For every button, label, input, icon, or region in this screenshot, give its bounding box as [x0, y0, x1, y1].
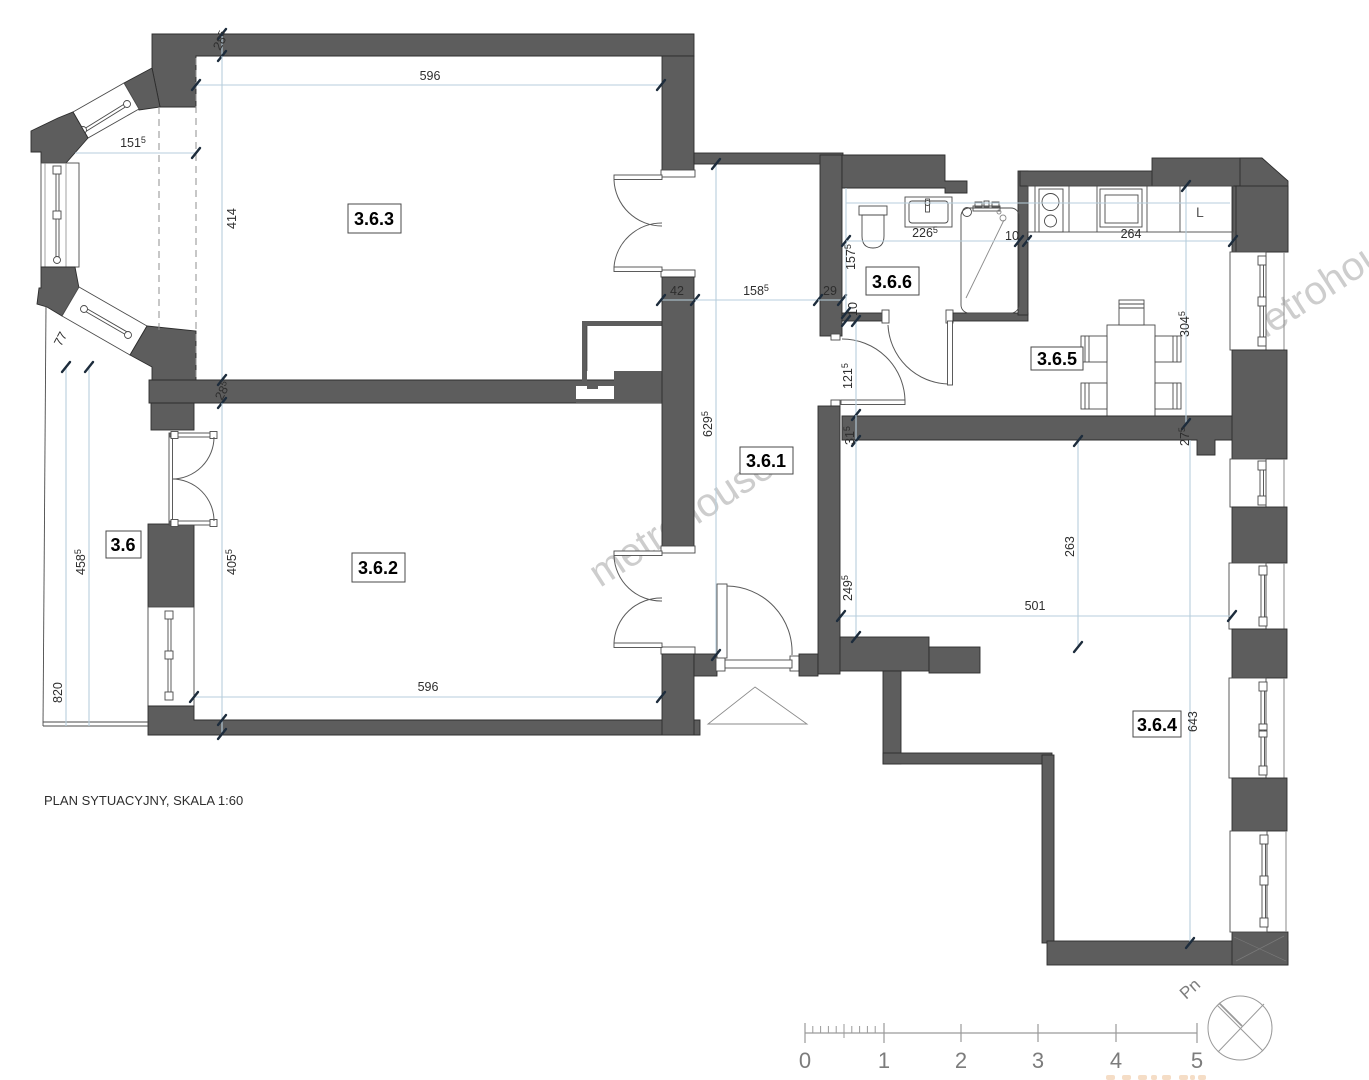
svg-text:10: 10: [1005, 229, 1019, 243]
svg-text:3.6.1: 3.6.1: [746, 451, 786, 471]
svg-text:1: 1: [878, 1048, 890, 1073]
svg-text:29: 29: [823, 284, 837, 298]
svg-text:596: 596: [418, 680, 439, 694]
svg-text:3.6.2: 3.6.2: [358, 558, 398, 578]
svg-text:4: 4: [1110, 1048, 1122, 1073]
svg-text:820: 820: [51, 682, 65, 703]
svg-text:3.6.6: 3.6.6: [872, 272, 912, 292]
svg-text:3: 3: [1032, 1048, 1044, 1073]
svg-text:5: 5: [1191, 1048, 1203, 1073]
svg-text:PLAN SYTUACYJNY, SKALA 1:60: PLAN SYTUACYJNY, SKALA 1:60: [44, 793, 243, 808]
svg-text:0: 0: [799, 1048, 811, 1073]
svg-text:501: 501: [1025, 599, 1046, 613]
svg-text:42: 42: [670, 284, 684, 298]
svg-text:L: L: [1196, 204, 1204, 220]
svg-text:3.6: 3.6: [110, 535, 135, 555]
svg-text:414: 414: [225, 208, 239, 229]
svg-text:3.6.4: 3.6.4: [1137, 715, 1177, 735]
svg-text:3.6.3: 3.6.3: [354, 209, 394, 229]
svg-text:3.6.5: 3.6.5: [1037, 349, 1077, 369]
svg-text:643: 643: [1186, 711, 1200, 732]
svg-text:2: 2: [955, 1048, 967, 1073]
svg-text:263: 263: [1063, 536, 1077, 557]
svg-text:596: 596: [420, 69, 441, 83]
svg-text:264: 264: [1121, 227, 1142, 241]
